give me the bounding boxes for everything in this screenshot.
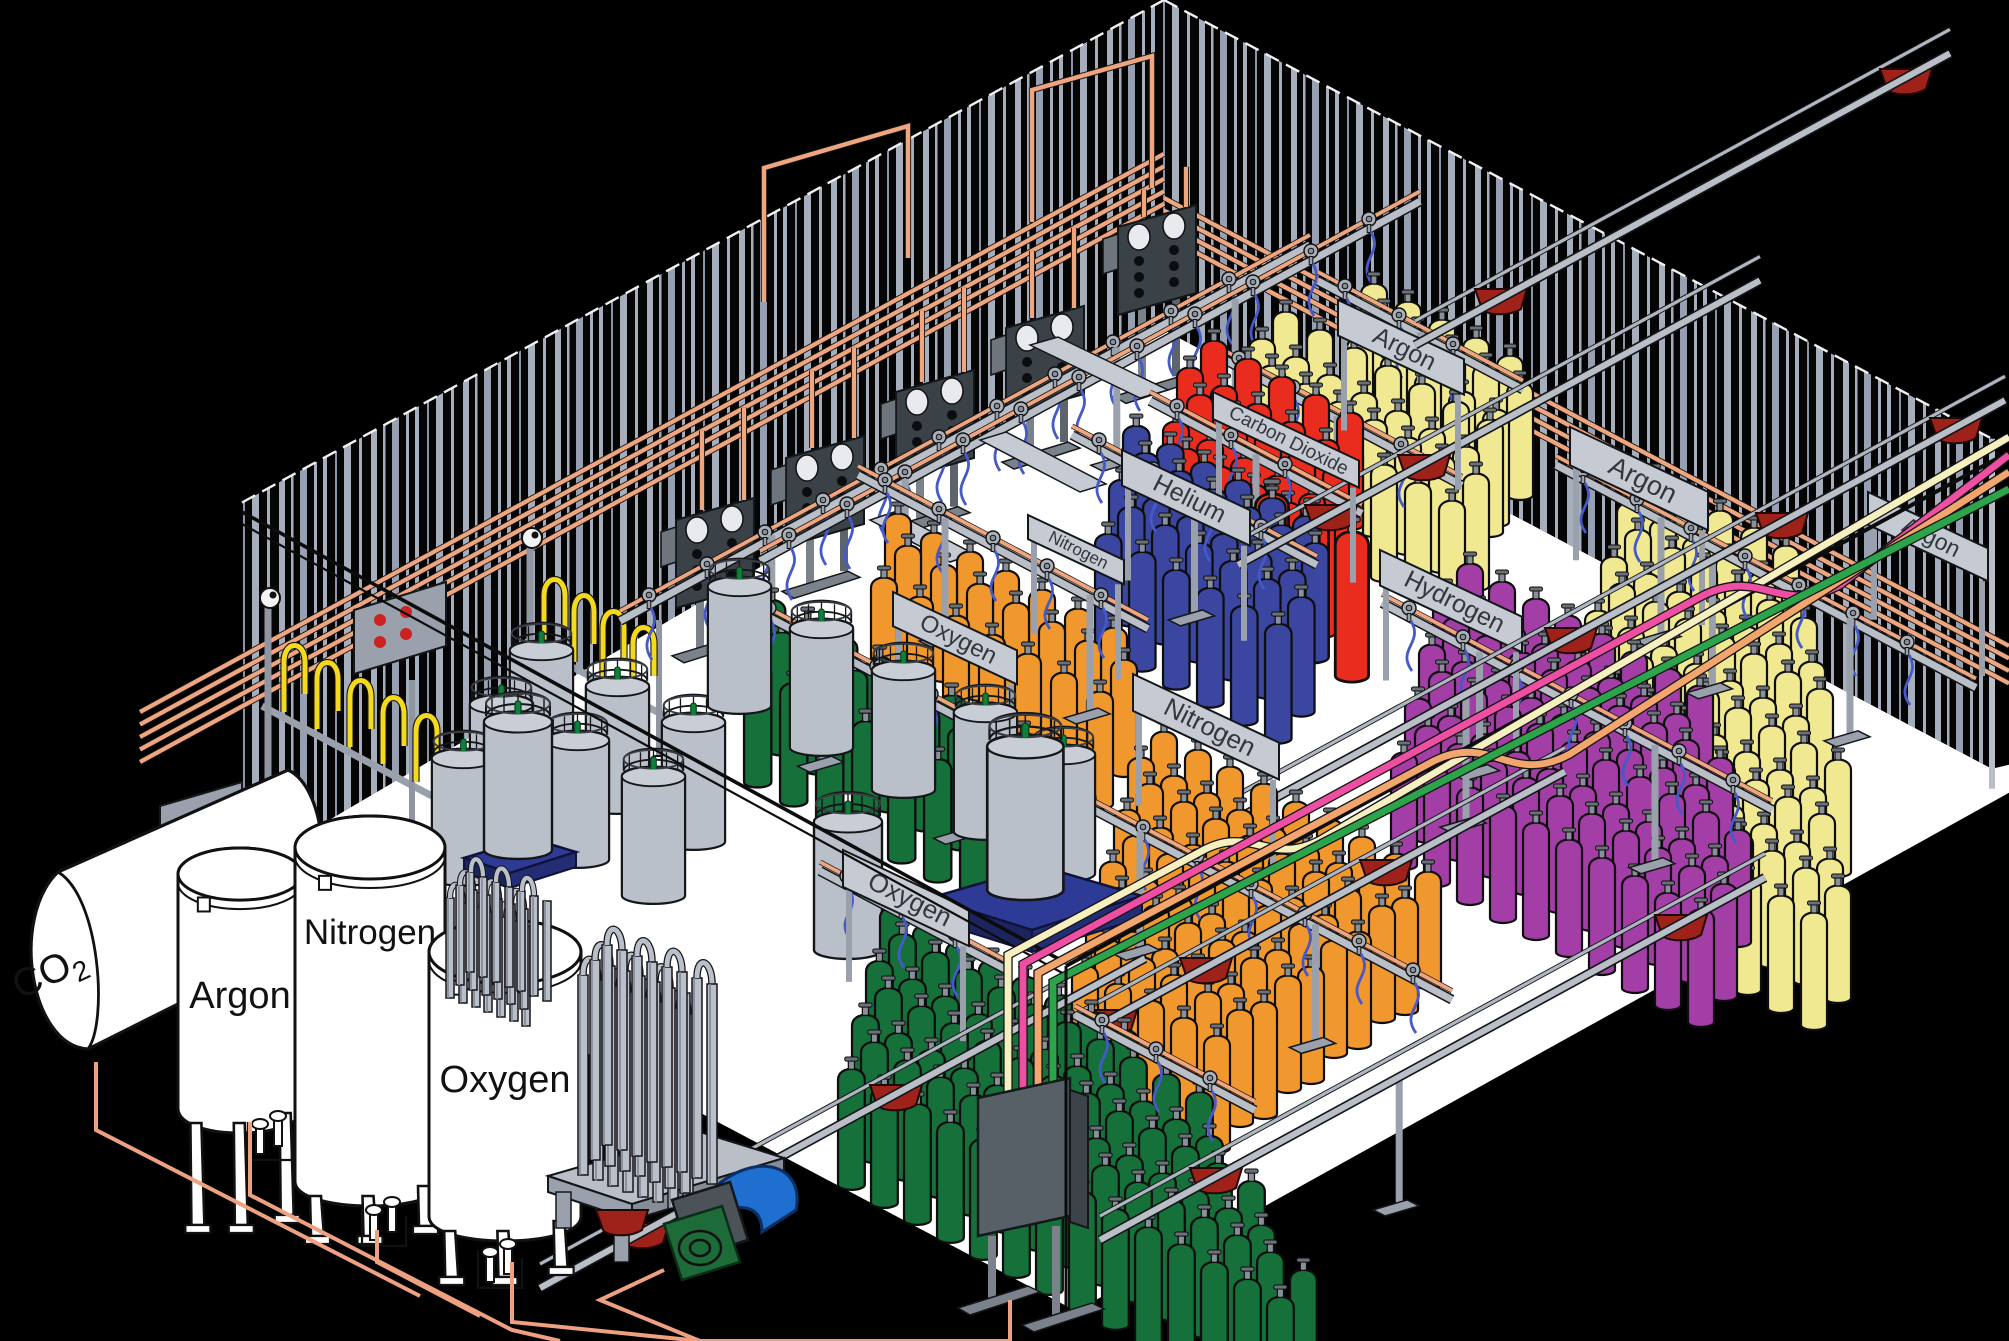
svg-text:Nitrogen: Nitrogen — [304, 913, 436, 952]
svg-text:Argon: Argon — [189, 975, 290, 1017]
svg-text:Oxygen: Oxygen — [440, 1059, 571, 1101]
